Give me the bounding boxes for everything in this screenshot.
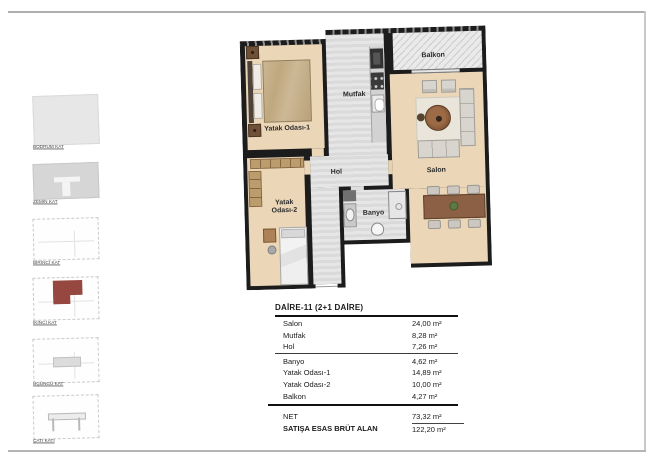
apartment-floor-plan: Yatak Odası-1 Mutfak Balkon Salon Hol Ba… (230, 23, 493, 292)
area-row-yatak-odasi-2: Yatak Odası-2 10,00 m² (275, 378, 458, 390)
brut-value: 122,20 m² (412, 423, 464, 434)
floor-thumb-bodrum[interactable] (32, 94, 100, 146)
area-row-salon: Salon 24,00 m² (275, 317, 458, 329)
dining-chair (448, 219, 461, 228)
floor-label-birinci: BİRİNCİ KAT (33, 261, 60, 266)
stove (371, 72, 384, 89)
thumb-shape (53, 357, 81, 367)
room-label-yatak-odasi-2: Yatak Odası-2 (262, 199, 306, 216)
area-row-value: 8,28 m² (412, 331, 437, 340)
area-row-label: Balkon (283, 392, 306, 401)
area-row-value: 4,27 m² (412, 392, 437, 401)
dining-chair (467, 185, 480, 194)
armchair (441, 79, 456, 92)
drawing-sheet: BODRUM KAT ZEMİN KAT BİRİNCİ KAT İKİNCİ … (0, 0, 660, 466)
area-row-label: Salon (283, 319, 302, 328)
sheet-frame-bottom (8, 450, 646, 452)
armchair (422, 80, 437, 93)
floor-thumb-ikinci-selected[interactable] (32, 276, 99, 321)
sofa (418, 139, 460, 158)
area-row-label: Yatak Odası-2 (283, 380, 330, 389)
area-row-value: 4,62 m² (412, 357, 437, 366)
area-row-yatak-odasi-1: Yatak Odası-1 14,89 m² (275, 366, 458, 378)
floor-label-bodrum: BODRUM KAT (33, 145, 64, 150)
net-value: 73,32 m² (412, 412, 442, 421)
washing-machine (343, 190, 356, 201)
door-opening (312, 148, 324, 156)
thumb-shape (62, 182, 70, 197)
dining-chair (428, 220, 441, 229)
floor-label-zemin: ZEMİN KAT (33, 200, 58, 205)
pillow (252, 64, 262, 90)
area-row-brut: SATIŞA ESAS BRÜT ALAN 122,20 m² (275, 422, 458, 434)
area-row-banyo: Banyo 4,62 m² (275, 355, 458, 367)
toilet (371, 222, 384, 235)
area-table-title: DAİRE-11 (2+1 DAİRE) (275, 303, 458, 315)
sheet-frame-right (644, 11, 646, 451)
floor-label-ikinci: İKİNCİ KAT (33, 321, 57, 326)
area-row-value: 7,26 m² (412, 342, 437, 351)
area-row-value: 24,00 m² (412, 319, 442, 328)
floor-thumb-birinci[interactable] (32, 217, 99, 261)
floor-label-cati: ÇATI KATI (33, 439, 55, 444)
area-row-value: 10,00 m² (412, 380, 442, 389)
fridge (370, 48, 384, 68)
nightstand (246, 46, 259, 59)
area-table: DAİRE-11 (2+1 DAİRE) Salon 24,00 m² Mutf… (275, 303, 458, 433)
room-label-banyo: Banyo (347, 209, 399, 218)
floor-thumb-ucuncu[interactable] (32, 337, 99, 384)
pillow (281, 229, 305, 239)
brut-label: SATIŞA ESAS BRÜT ALAN (283, 424, 378, 433)
area-row-balkon: Balkon 4,27 m² (275, 390, 458, 402)
net-label: NET (283, 412, 298, 421)
thumb-line (38, 240, 94, 242)
dining-chair (447, 185, 460, 194)
desk (263, 228, 276, 242)
thumb-line (73, 231, 75, 257)
dining-chair (468, 219, 481, 228)
floor-label-ucuncu: ÜÇÜNCÜ KAT (33, 382, 63, 387)
area-row-net: NET 73,32 m² (275, 410, 458, 422)
area-row-label: Mutfak (283, 331, 306, 340)
bed (262, 59, 312, 122)
wardrobe (250, 158, 304, 170)
room-label-mutfak: Mutfak (328, 90, 380, 99)
area-row-label: Hol (283, 342, 294, 351)
floor-thumb-zemin[interactable] (32, 162, 99, 200)
area-row-label: Banyo (283, 357, 304, 366)
floor-thumb-cati[interactable] (32, 394, 99, 440)
room-hol (311, 187, 342, 285)
area-row-label: Yatak Odası-1 (283, 368, 330, 377)
divider-thick (268, 404, 458, 406)
area-row-value: 14,89 m² (412, 368, 442, 377)
thumb-shape (52, 418, 54, 431)
divider-thin (275, 353, 458, 354)
sheet-frame-top (8, 11, 645, 13)
area-row-hol: Hol 7,26 m² (275, 340, 458, 352)
room-label-hol: Hol (310, 168, 362, 177)
dining-chair (427, 186, 440, 195)
thumb-shape (78, 417, 80, 430)
sofa (459, 88, 476, 146)
wardrobe (248, 171, 262, 207)
area-row-mutfak: Mutfak 8,28 m² (275, 329, 458, 341)
pillow (253, 93, 263, 119)
